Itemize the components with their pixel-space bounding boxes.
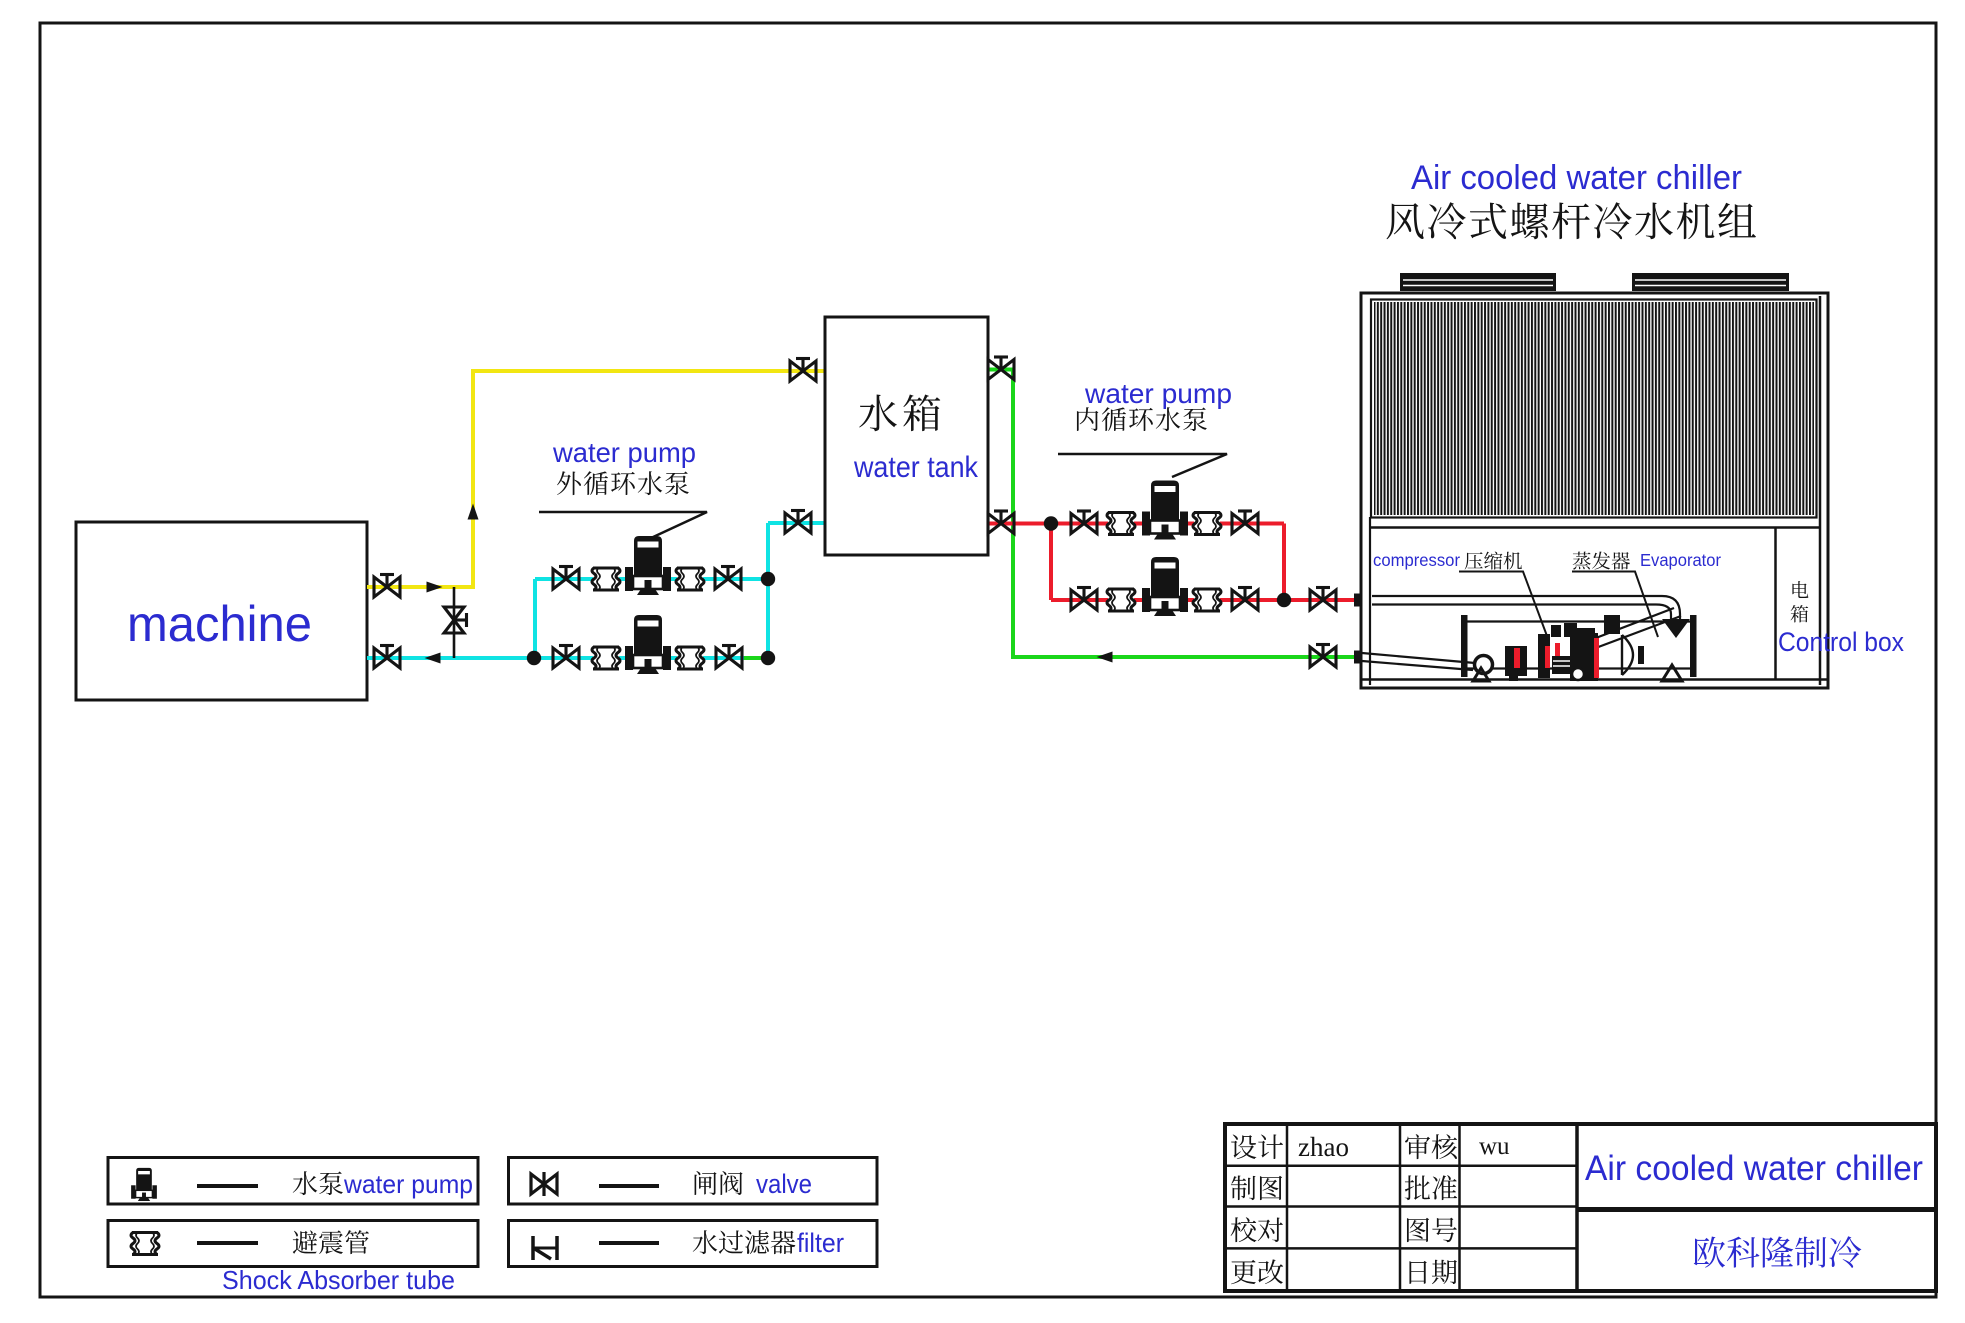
svg-text:Shock Absorber tube: Shock Absorber tube (222, 1265, 455, 1295)
svg-text:Air cooled water chiller: Air cooled water chiller (1411, 159, 1742, 197)
svg-text:Control box: Control box (1778, 627, 1904, 657)
svg-text:wu: wu (1479, 1133, 1510, 1160)
svg-text:water pump: water pump (343, 1169, 473, 1199)
svg-text:zhao: zhao (1298, 1132, 1349, 1162)
svg-text:water pump: water pump (552, 437, 696, 468)
svg-text:valve: valve (756, 1169, 812, 1199)
svg-text:water tank: water tank (853, 451, 979, 484)
svg-text:water pump: water pump (1084, 378, 1232, 409)
svg-text:Air cooled water chiller: Air cooled water chiller (1585, 1149, 1923, 1188)
svg-text:Evaporator: Evaporator (1640, 550, 1721, 570)
svg-text:compressor: compressor (1373, 550, 1460, 570)
svg-text:machine: machine (127, 596, 312, 652)
svg-text:filter: filter (797, 1228, 844, 1258)
